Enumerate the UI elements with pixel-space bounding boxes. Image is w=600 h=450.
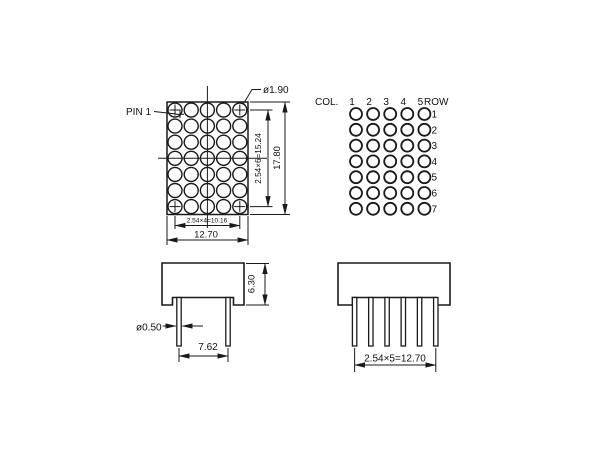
pattern-dot	[367, 187, 379, 199]
col-header-label: COL.	[315, 97, 338, 108]
pattern-dot-grid	[350, 108, 430, 215]
pattern-dot	[384, 187, 396, 199]
pattern-dot	[350, 187, 362, 199]
matrix-dot	[168, 135, 182, 149]
pattern-row-labels: 1234567	[432, 110, 438, 216]
pattern-dot	[384, 203, 396, 215]
pin-span-label: 2.54×5=12.70	[364, 354, 426, 365]
height-label: 17.80	[272, 146, 283, 170]
body-height-label: 6.30	[247, 275, 258, 294]
pattern-dot	[367, 124, 379, 136]
pin-diameter-label: ø0.50	[136, 323, 162, 334]
lead-pin	[226, 298, 230, 347]
front-pin-view-pins	[352, 298, 438, 347]
pattern-dot	[384, 124, 396, 136]
pattern-dot	[401, 203, 413, 215]
pattern-dot	[418, 108, 430, 120]
pattern-dot	[418, 124, 430, 136]
pin1-leader-line	[154, 112, 177, 115]
pattern-dot	[350, 155, 362, 167]
pattern-dot	[418, 187, 430, 199]
pattern-col-label: 1	[349, 97, 355, 108]
pattern-dot	[418, 171, 430, 183]
pattern-dot	[401, 171, 413, 183]
pattern-dot	[350, 171, 362, 183]
matrix-dot	[217, 200, 231, 214]
matrix-dot	[184, 200, 198, 214]
row-header-label: ROW	[424, 97, 449, 108]
pattern-row-label: 2	[432, 125, 438, 136]
pattern-dot	[384, 155, 396, 167]
mechanical-drawing-page: PIN 1 ø1.90 2.54×6=15.24 17.80 2.54×4=10…	[0, 0, 600, 450]
dot-diameter-label: ø1.90	[263, 85, 289, 96]
pattern-view: COL. ROW 12345 1234567	[315, 97, 449, 215]
matrix-dot	[233, 184, 247, 198]
lead-pin	[177, 298, 181, 347]
pattern-dot	[367, 203, 379, 215]
pattern-dot	[401, 187, 413, 199]
pin1-label: PIN 1	[126, 107, 151, 118]
matrix-dot	[217, 119, 231, 133]
matrix-dot	[168, 167, 182, 181]
lead-pin	[401, 298, 405, 347]
matrix-dot	[184, 135, 198, 149]
pattern-dot	[384, 108, 396, 120]
pattern-dot	[401, 155, 413, 167]
pattern-dot	[418, 155, 430, 167]
side-view: 6.30 ø0.50 7.62	[136, 263, 269, 362]
matrix-dot	[184, 184, 198, 198]
pattern-dot	[401, 140, 413, 152]
pattern-dot	[418, 140, 430, 152]
lead-pin	[434, 298, 438, 347]
matrix-dot	[184, 167, 198, 181]
pattern-col-label: 4	[401, 97, 407, 108]
pattern-col-labels: 12345	[349, 97, 423, 108]
matrix-dot	[217, 184, 231, 198]
pattern-dot	[384, 171, 396, 183]
pattern-dot	[401, 108, 413, 120]
pattern-col-label: 3	[383, 97, 389, 108]
pattern-dot	[367, 155, 379, 167]
matrix-dot	[233, 119, 247, 133]
matrix-dot	[168, 184, 182, 198]
pattern-dot	[350, 108, 362, 120]
front-view: PIN 1 ø1.90 2.54×6=15.24 17.80 2.54×4=10…	[126, 85, 290, 245]
pattern-row-label: 7	[432, 204, 438, 215]
pattern-dot	[350, 140, 362, 152]
lead-pin	[417, 298, 421, 347]
matrix-dot	[217, 135, 231, 149]
pattern-dot	[367, 108, 379, 120]
pattern-row-label: 1	[432, 110, 438, 121]
pattern-dot	[384, 140, 396, 152]
row-pitch-label: 2.54×6=15.24	[254, 133, 263, 184]
lead-pin	[369, 298, 373, 347]
matrix-dot	[233, 135, 247, 149]
matrix-dot	[217, 103, 231, 117]
pin-pitch-label: 7.62	[198, 342, 218, 353]
pattern-row-label: 3	[432, 141, 438, 152]
pattern-col-label: 5	[418, 97, 424, 108]
matrix-dot	[168, 119, 182, 133]
pattern-col-label: 2	[366, 97, 372, 108]
pattern-row-label: 6	[432, 189, 438, 200]
matrix-dot	[217, 167, 231, 181]
lead-pin	[352, 298, 356, 347]
pattern-dot	[401, 124, 413, 136]
pattern-dot	[350, 124, 362, 136]
lead-pin	[385, 298, 389, 347]
pattern-row-label: 5	[432, 173, 438, 184]
matrix-dot	[184, 119, 198, 133]
side-view-body	[162, 263, 244, 305]
width-label: 12.70	[194, 230, 218, 241]
dot-matrix-display-drawing: PIN 1 ø1.90 2.54×6=15.24 17.80 2.54×4=10…	[0, 0, 600, 450]
side-view-pins	[177, 298, 230, 347]
matrix-dot	[184, 103, 198, 117]
front-pin-view: 2.54×5=12.70	[338, 263, 450, 372]
pattern-row-label: 4	[432, 157, 438, 168]
pattern-dot	[367, 140, 379, 152]
pattern-dot	[350, 203, 362, 215]
col-pitch-label: 2.54×4=10.16	[187, 218, 228, 225]
pattern-dot	[418, 203, 430, 215]
matrix-dot	[233, 167, 247, 181]
pattern-dot	[367, 171, 379, 183]
